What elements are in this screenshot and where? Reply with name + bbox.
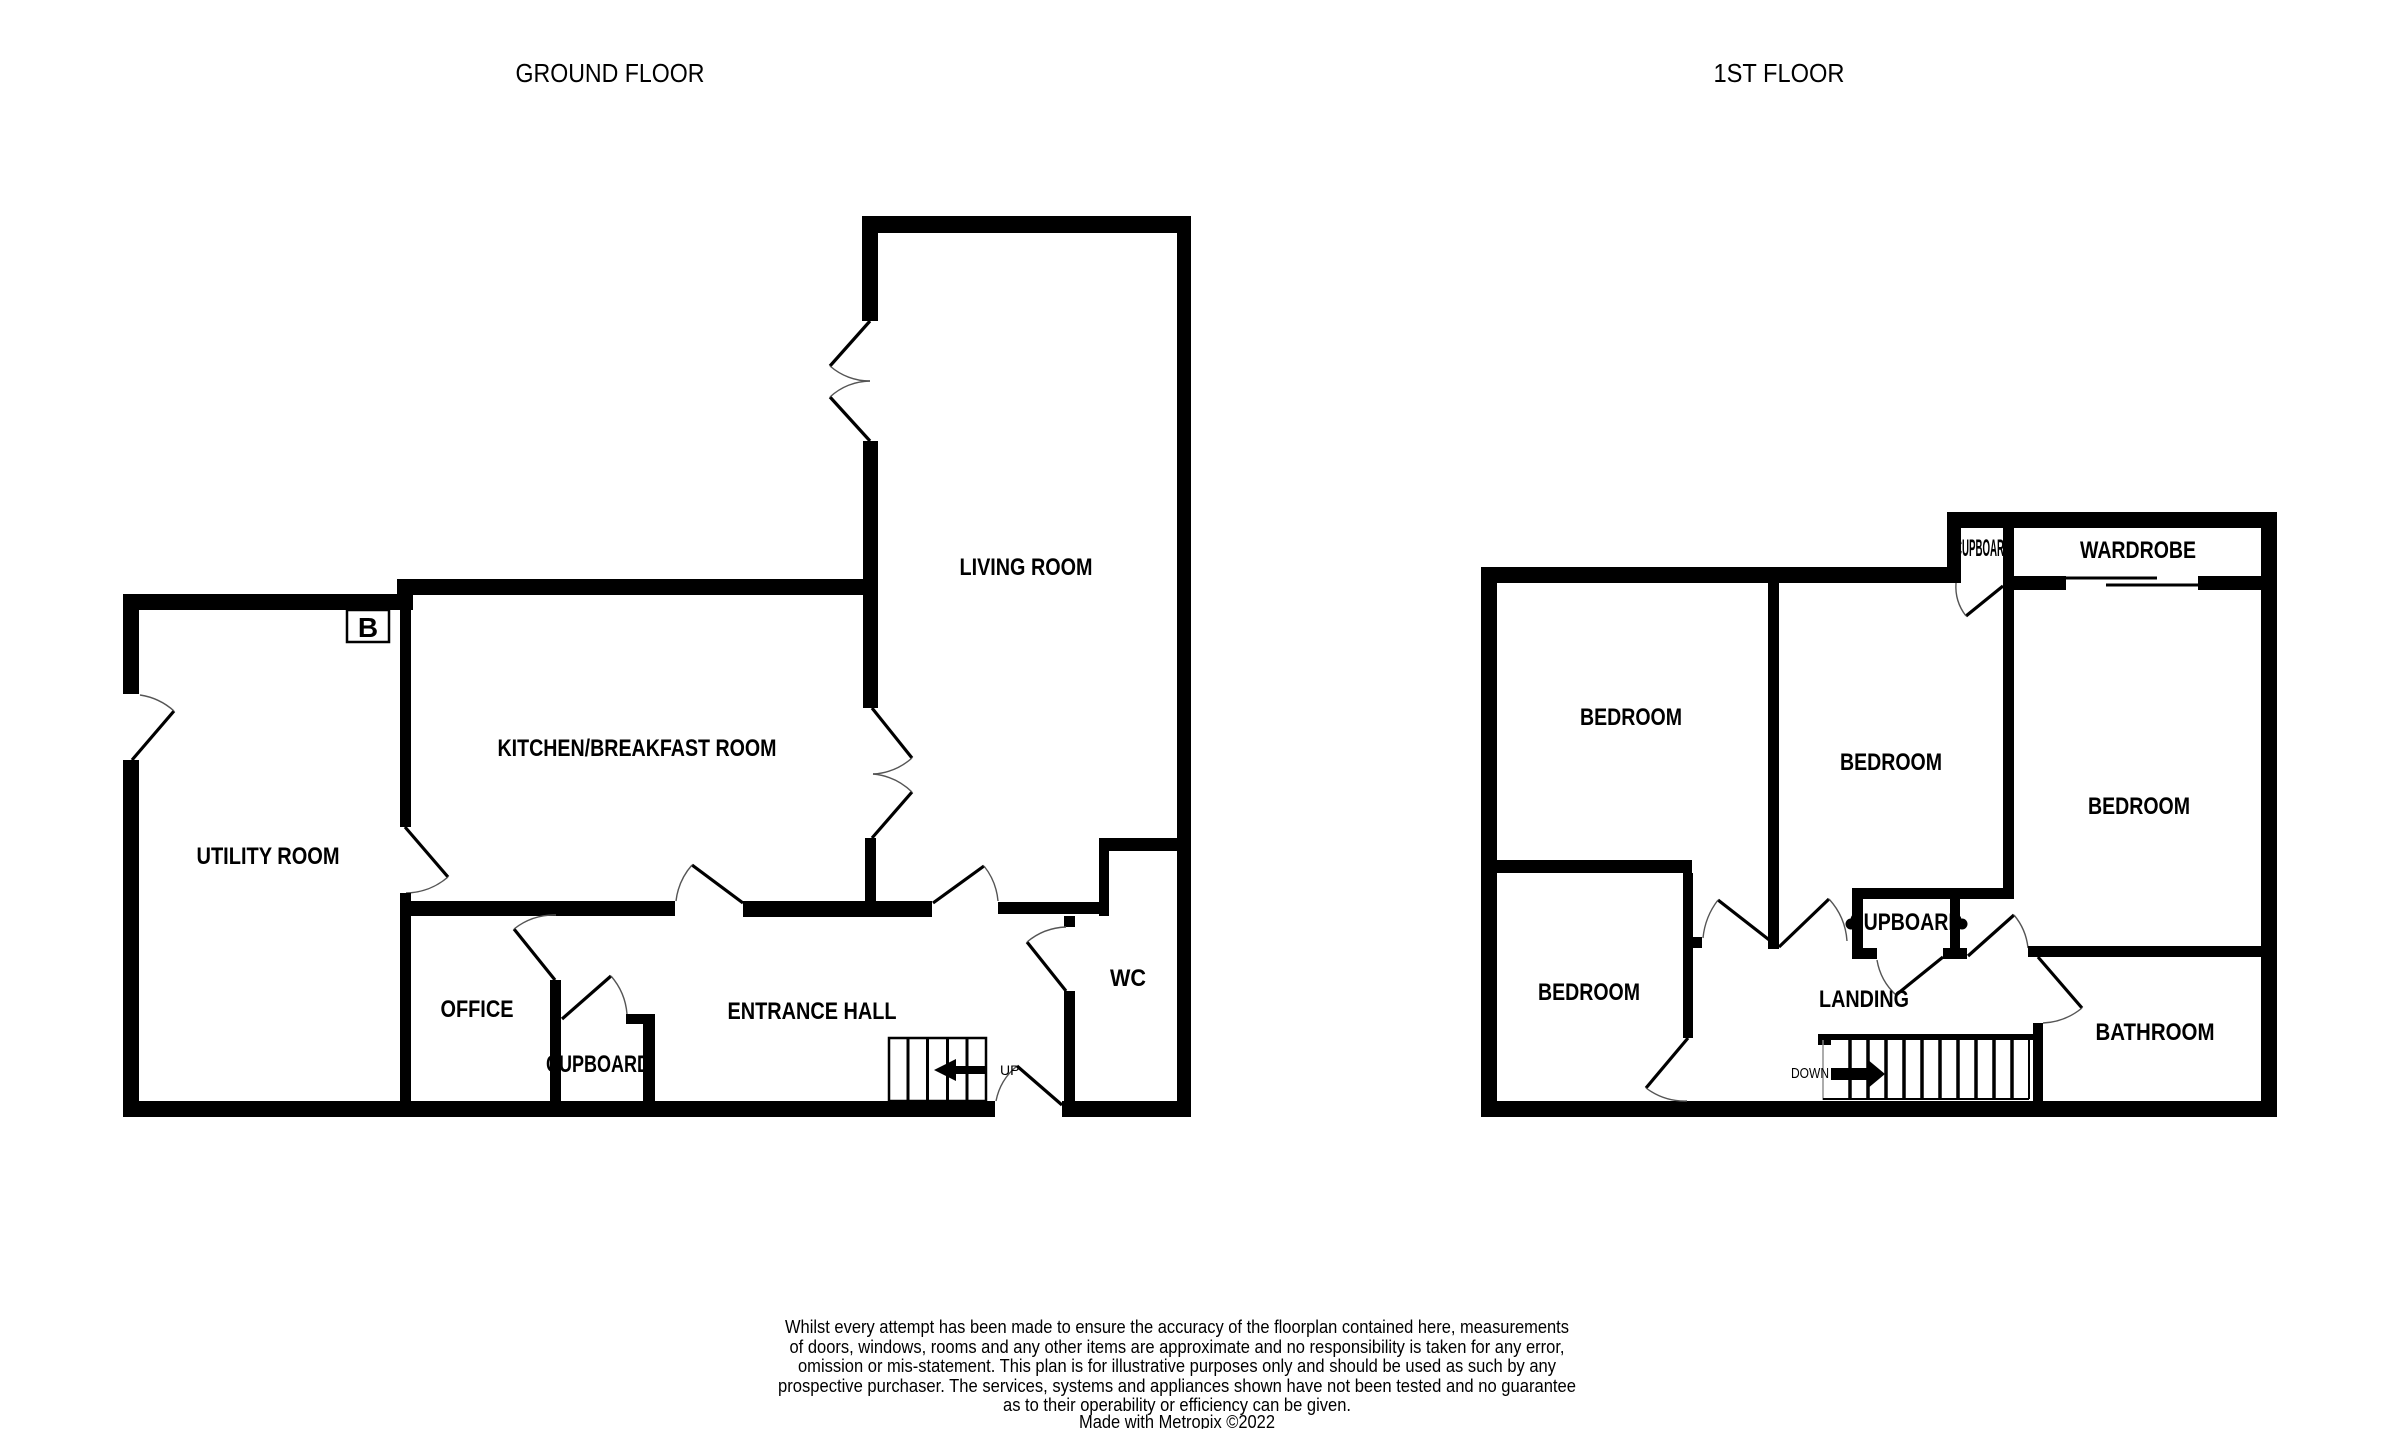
svg-text:B: B [358,612,378,643]
svg-text:BEDROOM: BEDROOM [2088,793,2190,820]
svg-text:CUPBOARD: CUPBOARD [1955,535,2011,562]
svg-text:of doors, windows, rooms and a: of doors, windows, rooms and any other i… [790,1336,1565,1357]
svg-text:Made with Metropix ©2022: Made with Metropix ©2022 [1079,1411,1275,1429]
svg-text:Whilst every attempt has been: Whilst every attempt has been made to en… [785,1316,1569,1337]
svg-text:UTILITY ROOM: UTILITY ROOM [197,843,340,870]
svg-text:BEDROOM: BEDROOM [1538,979,1640,1006]
svg-text:UP: UP [1000,1062,1019,1078]
svg-text:LIVING ROOM: LIVING ROOM [960,554,1093,581]
svg-text:CUPBOARD: CUPBOARD [546,1051,650,1078]
svg-text:LANDING: LANDING [1819,986,1909,1013]
svg-text:prospective purchaser. The ser: prospective purchaser. The services, sys… [778,1375,1576,1396]
svg-text:ENTRANCE HALL: ENTRANCE HALL [728,998,897,1025]
svg-text:WARDROBE: WARDROBE [2080,537,2196,564]
svg-text:BEDROOM: BEDROOM [1580,704,1682,731]
svg-text:DOWN: DOWN [1791,1065,1829,1082]
svg-text:1ST FLOOR: 1ST FLOOR [1714,58,1845,88]
svg-text:omission or mis-statement. Thi: omission or mis-statement. This plan is … [798,1355,1557,1376]
svg-text:CUPBOARD: CUPBOARD [1850,909,1963,936]
svg-text:KITCHEN/BREAKFAST ROOM: KITCHEN/BREAKFAST ROOM [498,735,777,762]
svg-text:BATHROOM: BATHROOM [2096,1019,2215,1046]
svg-text:BEDROOM: BEDROOM [1840,749,1942,776]
svg-text:GROUND FLOOR: GROUND FLOOR [516,58,705,88]
svg-text:OFFICE: OFFICE [441,996,514,1023]
svg-text:WC: WC [1110,965,1146,992]
